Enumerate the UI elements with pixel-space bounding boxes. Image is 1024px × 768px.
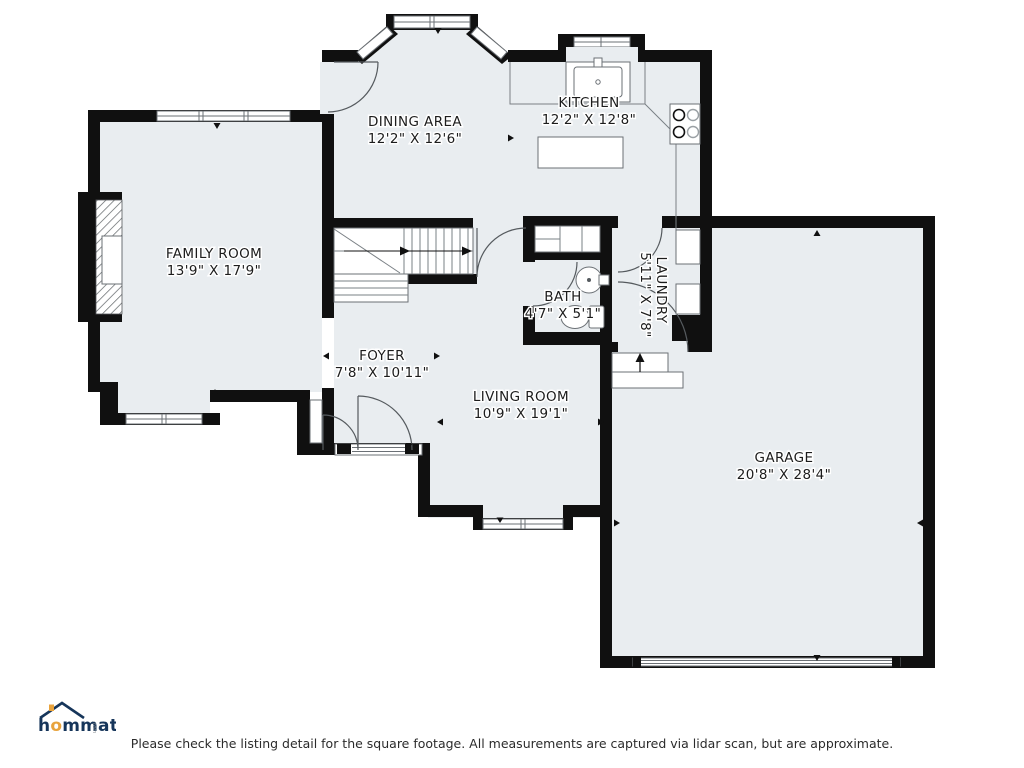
family-room-dims: 13'9" X 17'9" xyxy=(167,263,261,279)
floor-plan-page: FAMILY ROOM 13'9" X 17'9" DINING AREA 12… xyxy=(0,0,1024,768)
entry-closet xyxy=(310,400,322,443)
floor-plan: FAMILY ROOM 13'9" X 17'9" DINING AREA 12… xyxy=(0,0,1024,768)
laundry-label: LAUNDRY xyxy=(653,256,669,323)
living-room-label: LIVING ROOM xyxy=(473,389,569,405)
kitchen-dims: 12'2" X 12'8" xyxy=(542,112,636,128)
washer xyxy=(676,230,700,264)
kitchen-island xyxy=(538,137,623,168)
bath-dims: 4'7" X 5'1" xyxy=(525,306,601,322)
kitchen-stove xyxy=(670,104,700,144)
family-bay-window xyxy=(126,414,202,424)
family-room-window xyxy=(157,111,290,121)
hommati-logo: hommati .com xyxy=(36,698,116,738)
disclaimer-text: Please check the listing detail for the … xyxy=(0,736,1024,751)
hommati-wordmark: hommati xyxy=(38,716,116,736)
laundry-dims: 5'11" X 7'8" xyxy=(637,252,653,337)
foyer-dims: 7'8" X 10'11" xyxy=(335,365,429,381)
dining-area-label: DINING AREA xyxy=(368,114,462,130)
laundry-top-opening xyxy=(618,215,662,229)
laundry-bottom-opening xyxy=(618,341,688,353)
hall-closet xyxy=(535,226,600,252)
garage-door xyxy=(633,656,900,668)
dryer xyxy=(676,284,700,314)
fireplace xyxy=(78,192,122,322)
living-bay-window xyxy=(483,519,563,529)
dining-door-opening xyxy=(320,62,336,114)
foyer-label: FOYER xyxy=(359,348,405,364)
kitchen-label: KITCHEN xyxy=(558,95,619,111)
dining-area-dims: 12'2" X 12'6" xyxy=(368,131,462,147)
bath-label: BATH xyxy=(544,289,581,305)
garage-dims: 20'8" X 28'4" xyxy=(737,467,831,483)
logo-domain-suffix: .com xyxy=(91,721,97,733)
garage-label: GARAGE xyxy=(755,450,814,466)
family-room-label: FAMILY ROOM xyxy=(166,246,262,262)
living-room-dims: 10'9" X 19'1" xyxy=(474,406,568,422)
